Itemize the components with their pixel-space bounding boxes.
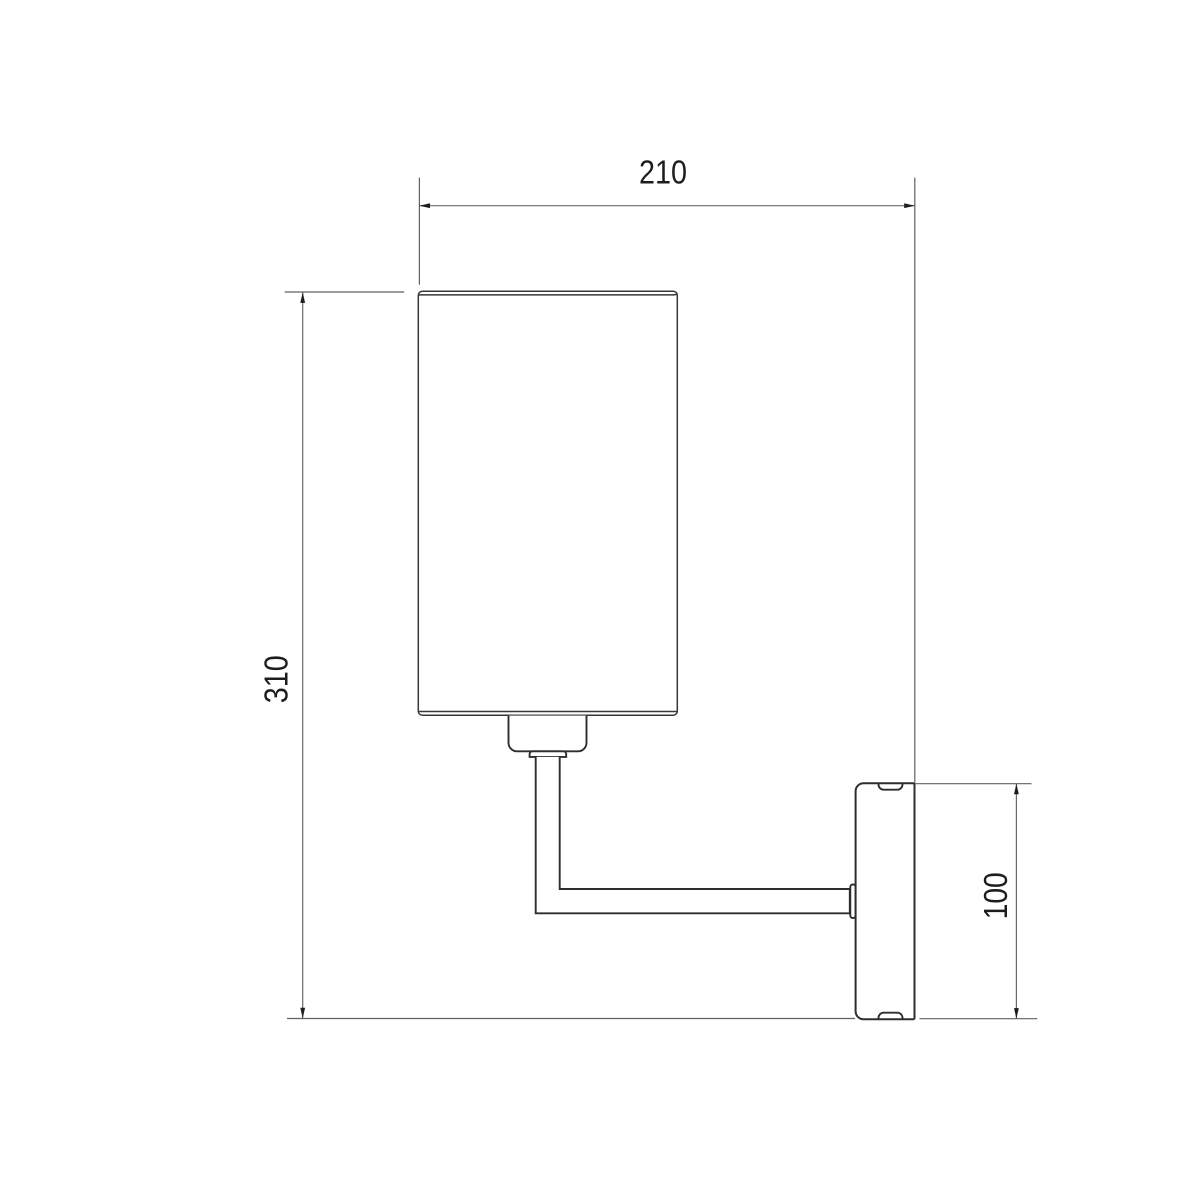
svg-text:100: 100 <box>978 872 1015 919</box>
svg-text:310: 310 <box>259 655 296 703</box>
svg-text:210: 210 <box>639 155 687 192</box>
